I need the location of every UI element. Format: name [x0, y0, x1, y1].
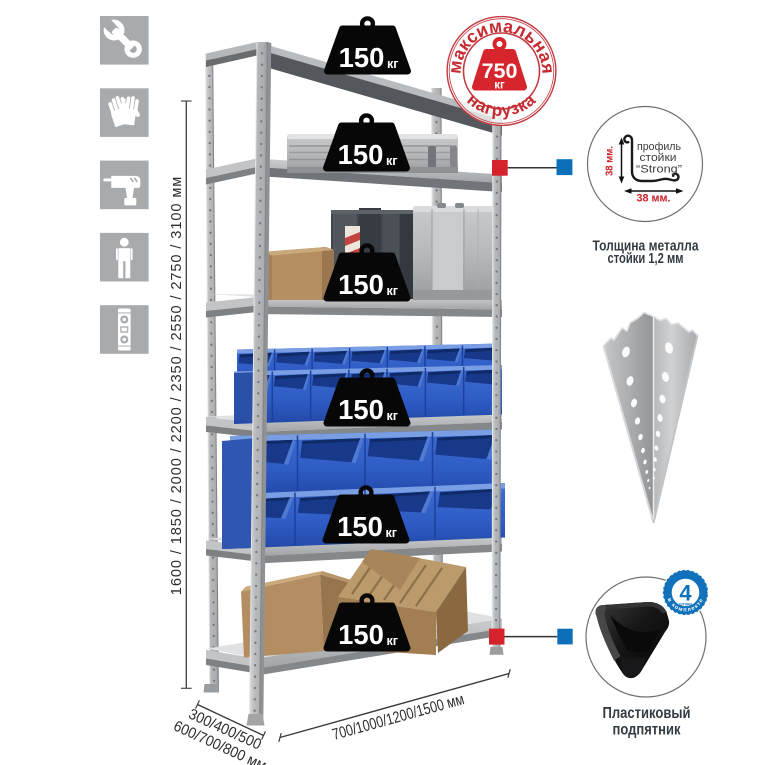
svg-text:стойки 1,2 мм: стойки 1,2 мм — [608, 250, 684, 267]
svg-text:38 мм.: 38 мм. — [637, 193, 671, 205]
svg-text:подпятник: подпятник — [613, 722, 681, 739]
svg-text:кг: кг — [494, 80, 505, 92]
svg-text:штуки: штуки — [679, 601, 692, 606]
svg-text:профиль: профиль — [637, 141, 681, 153]
svg-text:“Strong”: “Strong” — [636, 163, 682, 175]
svg-text:стойки: стойки — [640, 152, 677, 164]
svg-text:1600 / 1850 / 2000 / 2200 / 23: 1600 / 1850 / 2000 / 2200 / 2350 / 2550 … — [169, 176, 185, 595]
svg-text:Пластиковый: Пластиковый — [603, 705, 691, 722]
svg-text:38 мм.: 38 мм. — [605, 146, 616, 176]
